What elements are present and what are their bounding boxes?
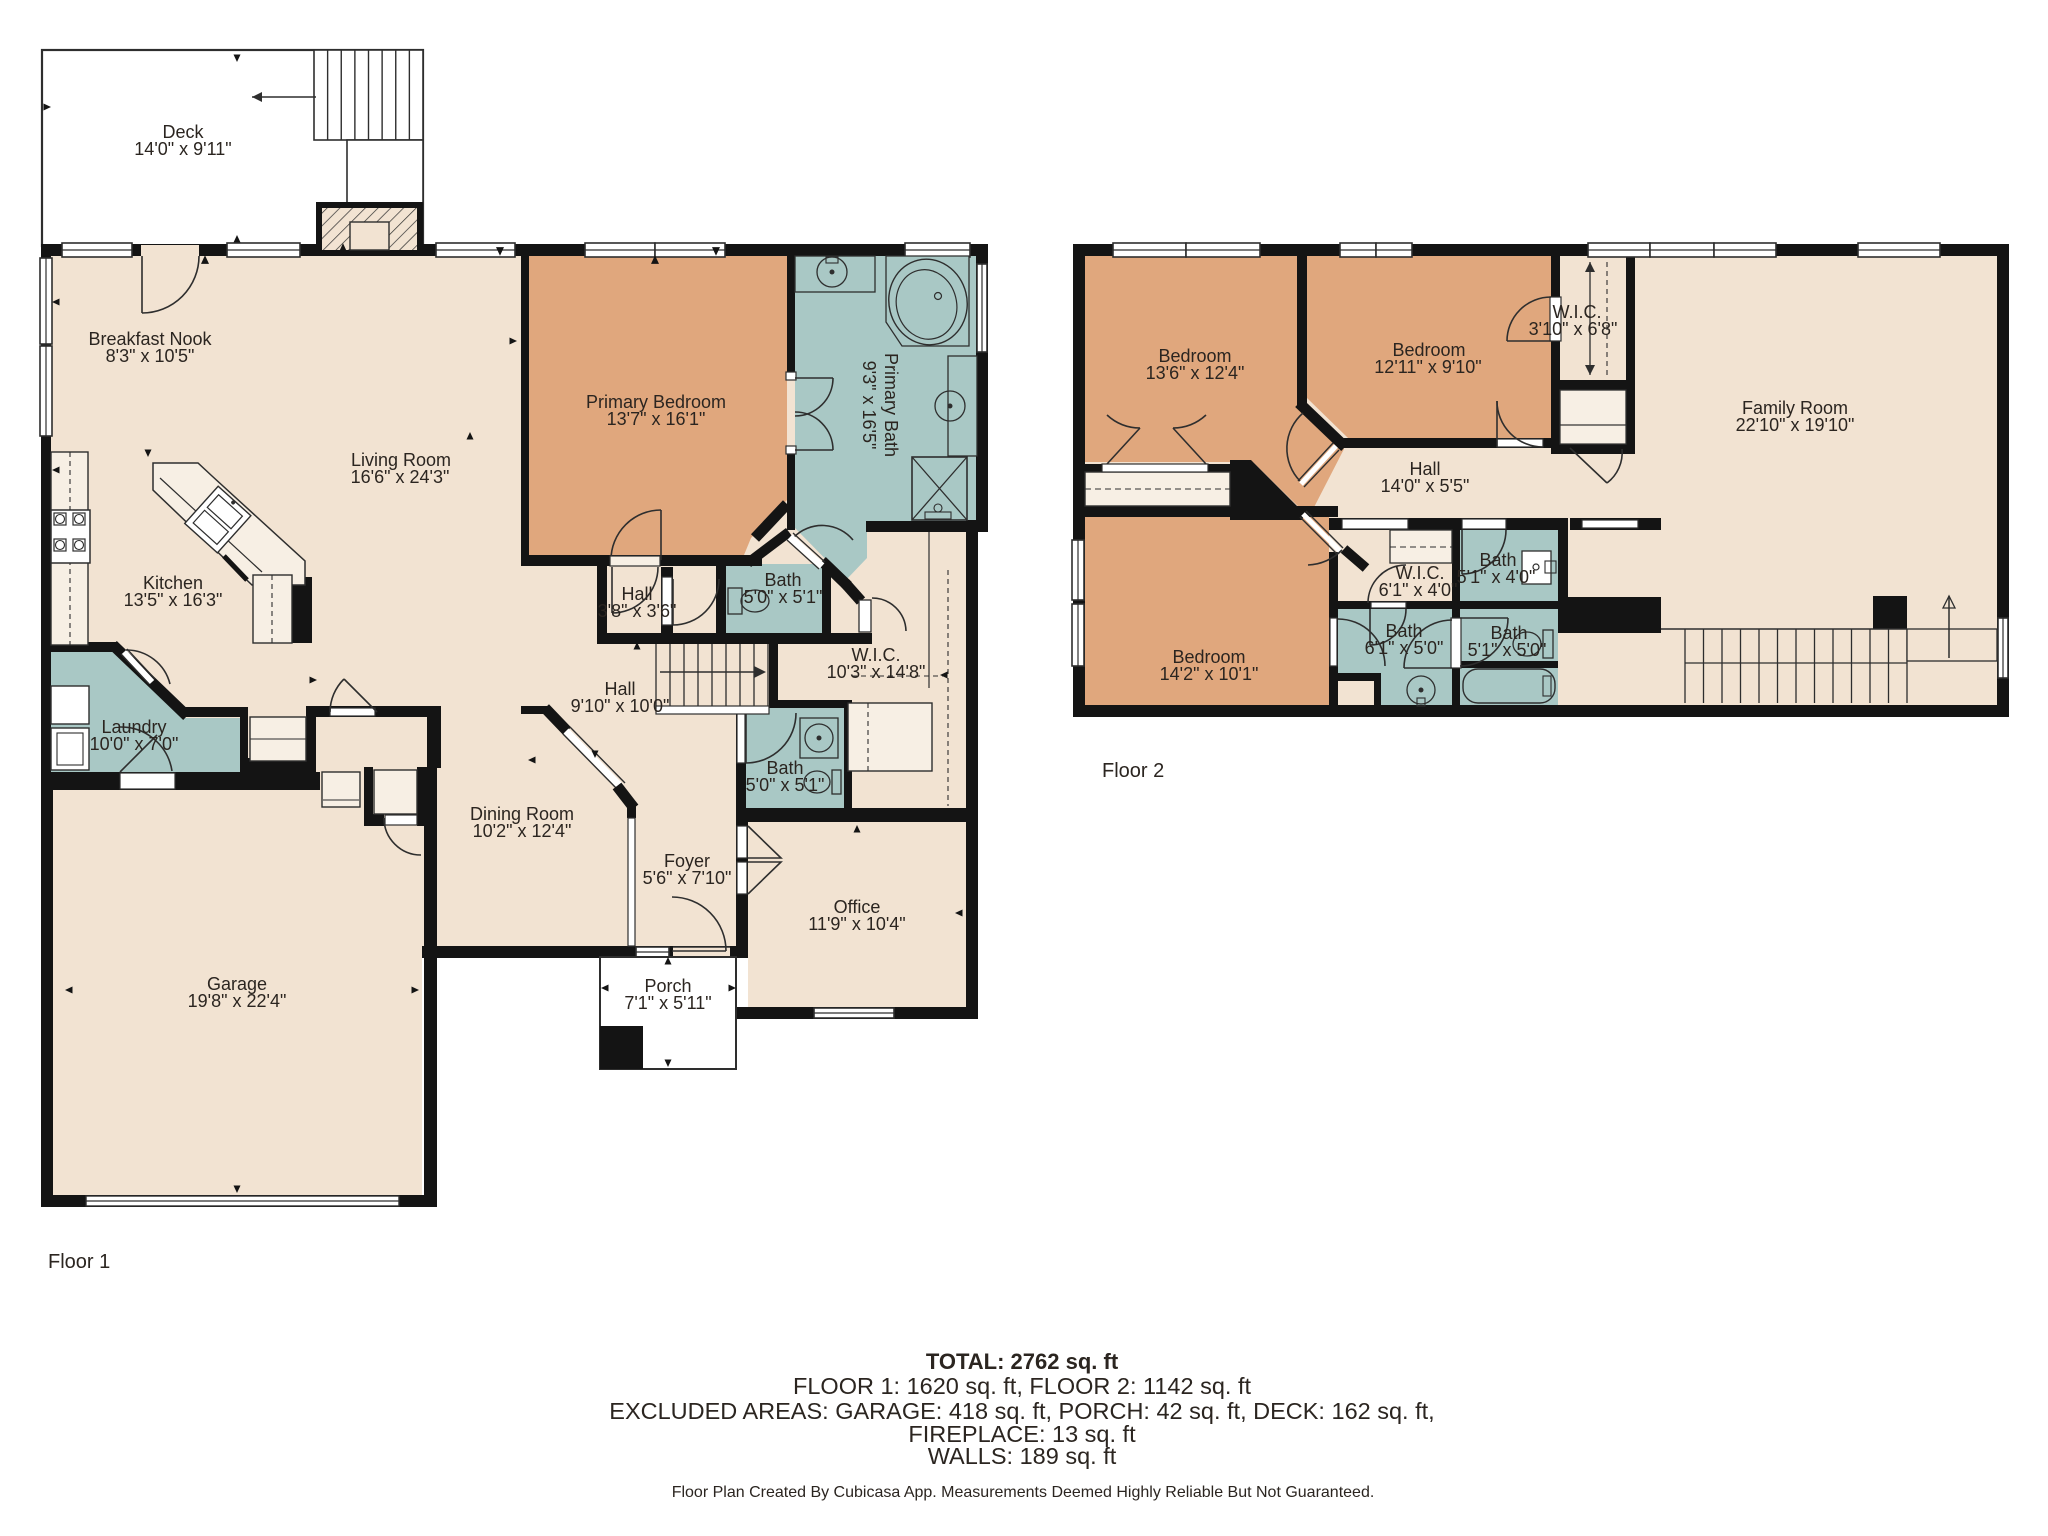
svg-text:6'1" x 4'0": 6'1" x 4'0" [1379,580,1458,600]
svg-text:7'1" x 5'11": 7'1" x 5'11" [624,993,711,1013]
svg-text:5'0" x 5'1": 5'0" x 5'1" [746,775,825,795]
svg-text:Floor Plan Created By Cubicasa: Floor Plan Created By Cubicasa App. Meas… [672,1484,1375,1501]
svg-text:19'8" x 22'4": 19'8" x 22'4" [188,991,287,1011]
svg-text:10'3" x 14'8": 10'3" x 14'8" [827,662,926,682]
svg-text:12'11" x 9'10": 12'11" x 9'10" [1374,357,1481,377]
svg-text:WALLS: 189 sq. ft: WALLS: 189 sq. ft [928,1443,1117,1469]
svg-text:22'10" x 19'10": 22'10" x 19'10" [1736,415,1855,435]
svg-text:5'6" x 7'10": 5'6" x 7'10" [643,868,732,888]
svg-text:9'3" x 16'5": 9'3" x 16'5" [859,361,879,450]
svg-text:8'3" x 10'5": 8'3" x 10'5" [106,346,195,366]
svg-text:Floor 1: Floor 1 [48,1251,110,1273]
svg-text:14'2" x 10'1": 14'2" x 10'1" [1160,664,1259,684]
svg-text:3'8" x 3'6": 3'8" x 3'6" [598,601,677,621]
svg-text:13'6" x 12'4": 13'6" x 12'4" [1146,363,1245,383]
svg-text:5'0" x 5'1": 5'0" x 5'1" [744,587,823,607]
svg-text:Primary Bath: Primary Bath [881,353,901,457]
svg-text:FLOOR 1: 1620 sq. ft, FLOOR 2:: FLOOR 1: 1620 sq. ft, FLOOR 2: 1142 sq. … [793,1373,1251,1399]
svg-text:11'9" x 10'4": 11'9" x 10'4" [808,914,905,934]
svg-text:13'5" x 16'3": 13'5" x 16'3" [124,590,223,610]
svg-text:9'10" x 10'0": 9'10" x 10'0" [571,696,670,716]
svg-text:Floor 2: Floor 2 [1102,760,1164,782]
svg-text:3'10" x 6'8": 3'10" x 6'8" [1529,319,1618,339]
svg-text:TOTAL: 2762 sq. ft: TOTAL: 2762 sq. ft [926,1349,1119,1374]
svg-text:13'7" x 16'1": 13'7" x 16'1" [607,409,706,429]
svg-text:6'1" x 5'0": 6'1" x 5'0" [1365,638,1444,658]
svg-text:14'0" x 9'11": 14'0" x 9'11" [134,139,231,159]
svg-text:5'1" x 5'0": 5'1" x 5'0" [1468,640,1547,660]
svg-text:14'0" x 5'5": 14'0" x 5'5" [1381,476,1470,496]
svg-text:10'0" x 7'0": 10'0" x 7'0" [90,734,179,754]
svg-text:16'6" x 24'3": 16'6" x 24'3" [351,467,450,487]
svg-text:10'2" x 12'4": 10'2" x 12'4" [473,821,572,841]
svg-text:5'1" x 4'0": 5'1" x 4'0" [1457,567,1536,587]
